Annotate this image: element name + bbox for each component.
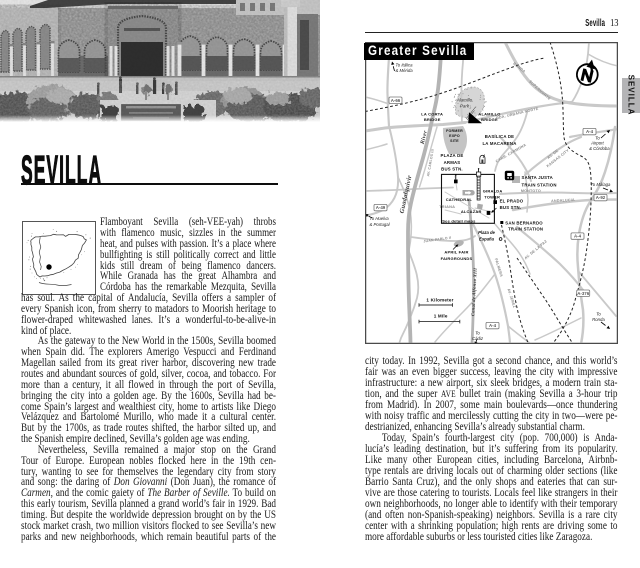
- svg-text:See detail maps: See detail maps: [442, 219, 476, 224]
- svg-text:To: To: [596, 312, 601, 317]
- svg-text:To: To: [475, 331, 480, 336]
- svg-text:BRIDGE: BRIDGE: [423, 117, 440, 122]
- svg-text:FORMER: FORMER: [446, 129, 463, 133]
- svg-text:A-4: A-4: [573, 234, 581, 239]
- svg-text:BUS STN.: BUS STN.: [441, 167, 463, 172]
- svg-text:TRAIN STATION: TRAIN STATION: [508, 227, 543, 232]
- svg-text:To Huelva: To Huelva: [369, 217, 389, 222]
- svg-text:TOWER: TOWER: [484, 195, 500, 200]
- svg-text:FAIRGROUNDS: FAIRGROUNDS: [440, 256, 472, 261]
- svg-text:TRAIN STATION: TRAIN STATION: [521, 183, 556, 188]
- svg-text:PLAZA DE: PLAZA DE: [440, 153, 463, 158]
- svg-text:Alamillo: Alamillo: [455, 98, 472, 103]
- svg-text:EL PRADO: EL PRADO: [499, 199, 523, 204]
- svg-text:Park: Park: [459, 104, 469, 109]
- svg-text:& Mérida: & Mérida: [395, 69, 413, 74]
- svg-text:SAN BERNARDO: SAN BERNARDO: [505, 221, 543, 226]
- svg-text:BUS STN.: BUS STN.: [499, 205, 521, 210]
- svg-text:SANTA JUSTA: SANTA JUSTA: [521, 175, 552, 180]
- svg-text:SITE: SITE: [450, 139, 459, 143]
- svg-text:A-4: A-4: [488, 324, 496, 329]
- svg-text:TRIANA: TRIANA: [439, 204, 455, 209]
- svg-text:EXPO: EXPO: [449, 134, 460, 138]
- svg-text:ALCÁZAR: ALCÁZAR: [460, 209, 481, 214]
- svg-text:A-92: A-92: [595, 196, 605, 201]
- svg-text:APRIL FAIR: APRIL FAIR: [444, 250, 468, 255]
- svg-text:To Itálica: To Itálica: [395, 63, 413, 68]
- svg-text:España: España: [479, 237, 495, 242]
- svg-text:A-4: A-4: [585, 130, 593, 135]
- svg-text:To Málaga: To Málaga: [590, 183, 611, 188]
- svg-text:MONTOTO: MONTOTO: [520, 189, 540, 193]
- svg-text:Ronda: Ronda: [592, 318, 605, 323]
- svg-text:A-66: A-66: [390, 98, 400, 103]
- svg-text:1 Kilometer: 1 Kilometer: [426, 298, 453, 303]
- svg-text:Plaza de: Plaza de: [478, 230, 495, 235]
- svg-text:BASÍLICA DE: BASÍLICA DE: [484, 135, 514, 140]
- svg-text:A-49: A-49: [375, 206, 385, 211]
- svg-text:LA MACARENA: LA MACARENA: [482, 142, 516, 147]
- svg-text:& Córdoba: & Córdoba: [589, 146, 610, 151]
- svg-text:CATHEDRAL: CATHEDRAL: [445, 197, 472, 202]
- svg-text:A-376: A-376: [577, 291, 590, 296]
- svg-text:Cádiz: Cádiz: [472, 337, 484, 342]
- svg-text:ARMAS: ARMAS: [443, 160, 460, 165]
- svg-text:GIRALDA: GIRALDA: [482, 189, 502, 194]
- svg-text:1 Mile: 1 Mile: [433, 314, 447, 319]
- svg-text:& Portugal: & Portugal: [369, 222, 390, 227]
